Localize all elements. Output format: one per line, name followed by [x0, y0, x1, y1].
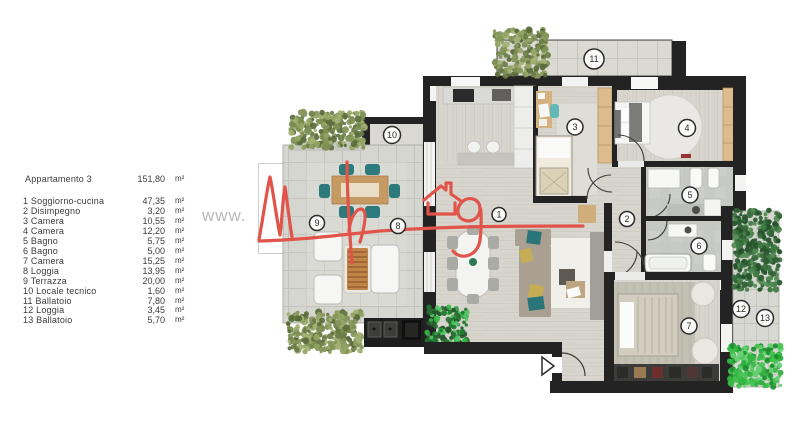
svg-text:4: 4	[684, 123, 689, 133]
svg-text:7: 7	[686, 321, 691, 331]
svg-text:3: 3	[572, 122, 577, 132]
svg-text:9: 9	[314, 218, 319, 228]
svg-text:1: 1	[496, 210, 501, 220]
svg-text:12: 12	[736, 304, 746, 314]
svg-text:13: 13	[760, 313, 770, 323]
svg-text:11: 11	[589, 54, 598, 64]
svg-text:10: 10	[387, 130, 397, 140]
svg-text:www.: www.	[201, 206, 247, 225]
svg-text:8: 8	[395, 221, 400, 231]
svg-text:6: 6	[696, 241, 701, 251]
svg-text:5: 5	[687, 190, 692, 200]
svg-text:2: 2	[624, 214, 629, 224]
